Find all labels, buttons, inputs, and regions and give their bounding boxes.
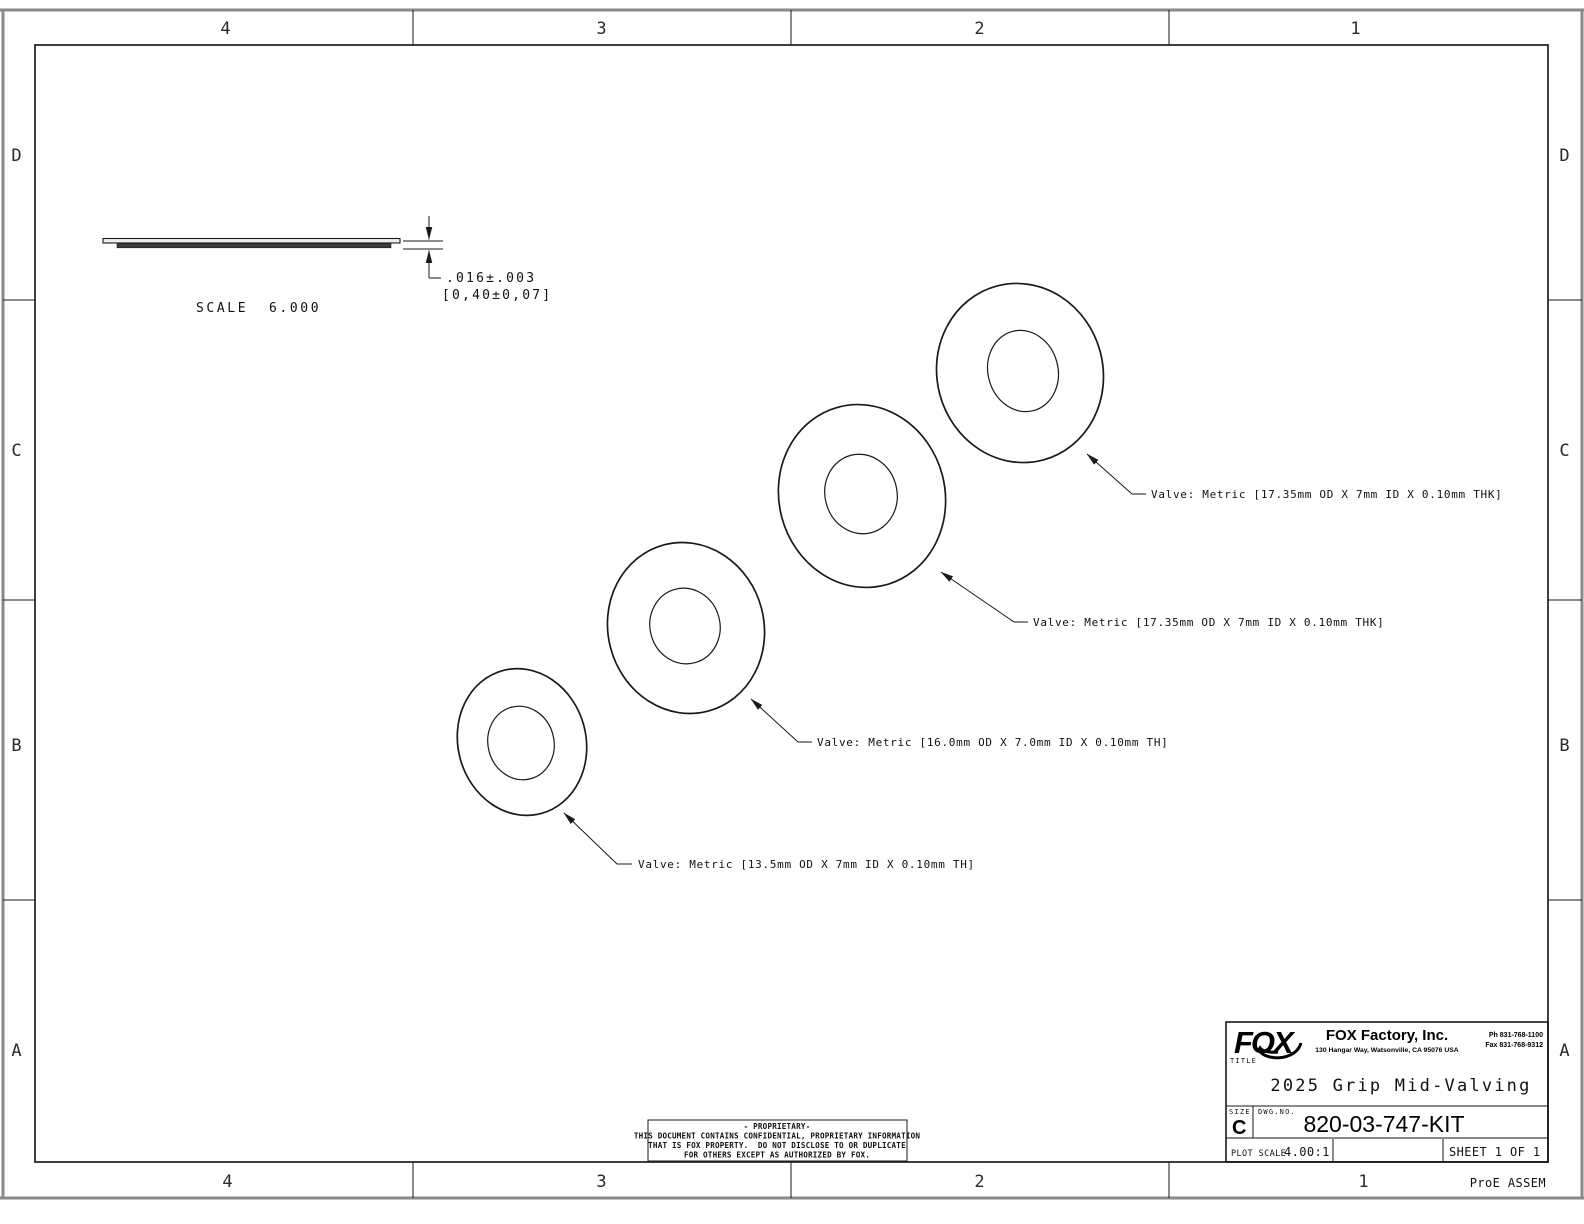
leader-line-4 <box>1087 454 1146 494</box>
row-label-left-D: D <box>11 146 22 166</box>
shim-stack-side-view: .016±.003 [0,40±0,07] SCALE 6.000 <box>103 216 552 316</box>
row-label-left-C: C <box>11 441 22 461</box>
valve-label-1: Valve: Metric [13.5mm OD X 7mm ID X 0.10… <box>638 858 975 871</box>
thickness-dimension-metric: [0,40±0,07] <box>442 288 552 303</box>
sheet-count: SHEET 1 OF 1 <box>1449 1145 1541 1159</box>
size-label: SIZE <box>1229 1108 1251 1116</box>
sheet-frame <box>0 10 1584 1198</box>
row-label-right-B: B <box>1559 736 1570 756</box>
thickness-dimension: .016±.003 <box>446 271 536 286</box>
drawing-border <box>35 45 1548 1162</box>
zone-band-right: D C B A <box>1548 146 1582 1061</box>
zone-label-top-3: 3 <box>596 19 607 39</box>
proprietary-line-1: - PROPRIETARY- <box>744 1122 811 1131</box>
shim-plate-top <box>103 239 400 244</box>
proprietary-line-4: FOR OTHERS EXCEPT AS AUTHORIZED BY FOX. <box>684 1151 870 1160</box>
shim-plate-under <box>117 244 391 248</box>
title-block: FOX TITLE FOX Factory, Inc. 130 Hangar W… <box>1226 1022 1548 1162</box>
row-label-left-B: B <box>11 736 22 756</box>
company-fax: Fax 831-768-9312 <box>1485 1042 1543 1049</box>
company-name: FOX Factory, Inc. <box>1326 1027 1448 1044</box>
valve-label-3: Valve: Metric [17.35mm OD X 7mm ID X 0.1… <box>1033 616 1384 629</box>
company-phone: Ph 831-768-1100 <box>1489 1032 1543 1039</box>
company-address: 130 Hangar Way, Watsonville, CA 95076 US… <box>1315 1047 1459 1054</box>
proprietary-line-2: THIS DOCUMENT CONTAINS CONFIDENTIAL, PRO… <box>634 1132 921 1141</box>
size-value: C <box>1232 1117 1246 1139</box>
zone-label-bottom-4: 4 <box>222 1172 233 1192</box>
leader-line-3 <box>941 572 1028 622</box>
proprietary-note: - PROPRIETARY- THIS DOCUMENT CONTAINS CO… <box>634 1120 921 1161</box>
row-label-right-D: D <box>1559 146 1570 166</box>
valve-label-4: Valve: Metric [17.35mm OD X 7mm ID X 0.1… <box>1151 488 1502 501</box>
row-label-right-C: C <box>1559 441 1570 461</box>
zone-label-bottom-3: 3 <box>596 1172 607 1192</box>
zone-band-bottom: 4 3 2 1 ProE ASSEM <box>222 1162 1546 1198</box>
row-label-right-A: A <box>1559 1041 1570 1061</box>
plot-scale-value: 4.00:1 <box>1284 1145 1330 1159</box>
valve-label-2: Valve: Metric [16.0mm OD X 7.0mm ID X 0.… <box>817 736 1168 749</box>
drawing-title: 2025 Grip Mid-Valving <box>1270 1076 1531 1096</box>
dwg-no-value: 820-03-747-KIT <box>1303 1111 1464 1137</box>
dwg-no-label: DWG.NO. <box>1258 1108 1296 1116</box>
zone-label-top-2: 2 <box>974 19 985 39</box>
leader-line-2 <box>751 699 812 742</box>
fox-logo: FOX <box>1234 1025 1301 1060</box>
row-label-left-A: A <box>11 1041 22 1061</box>
drawing-canvas: 4 3 2 1 4 3 2 1 ProE ASSEM D C B A D C B… <box>0 0 1584 1224</box>
zone-band-left: D C B A <box>3 146 35 1061</box>
leader-line-1 <box>564 813 632 864</box>
plot-scale-label: PLOT SCALE <box>1231 1149 1286 1159</box>
zone-label-bottom-1: 1 <box>1358 1172 1369 1192</box>
zone-label-bottom-2: 2 <box>974 1172 985 1192</box>
zone-band-top: 4 3 2 1 <box>220 10 1361 45</box>
zone-label-top-4: 4 <box>220 19 231 39</box>
footer-note: ProE ASSEM <box>1470 1176 1546 1190</box>
drawing-sheet: 4 3 2 1 4 3 2 1 ProE ASSEM D C B A D C B… <box>0 0 1584 1224</box>
zone-label-top-1: 1 <box>1350 19 1361 39</box>
view-scale-label: SCALE 6.000 <box>196 301 321 316</box>
proprietary-line-3: THAT IS FOX PROPERTY. DO NOT DISCLOSE TO… <box>648 1141 906 1150</box>
title-field-label: TITLE <box>1230 1057 1257 1065</box>
